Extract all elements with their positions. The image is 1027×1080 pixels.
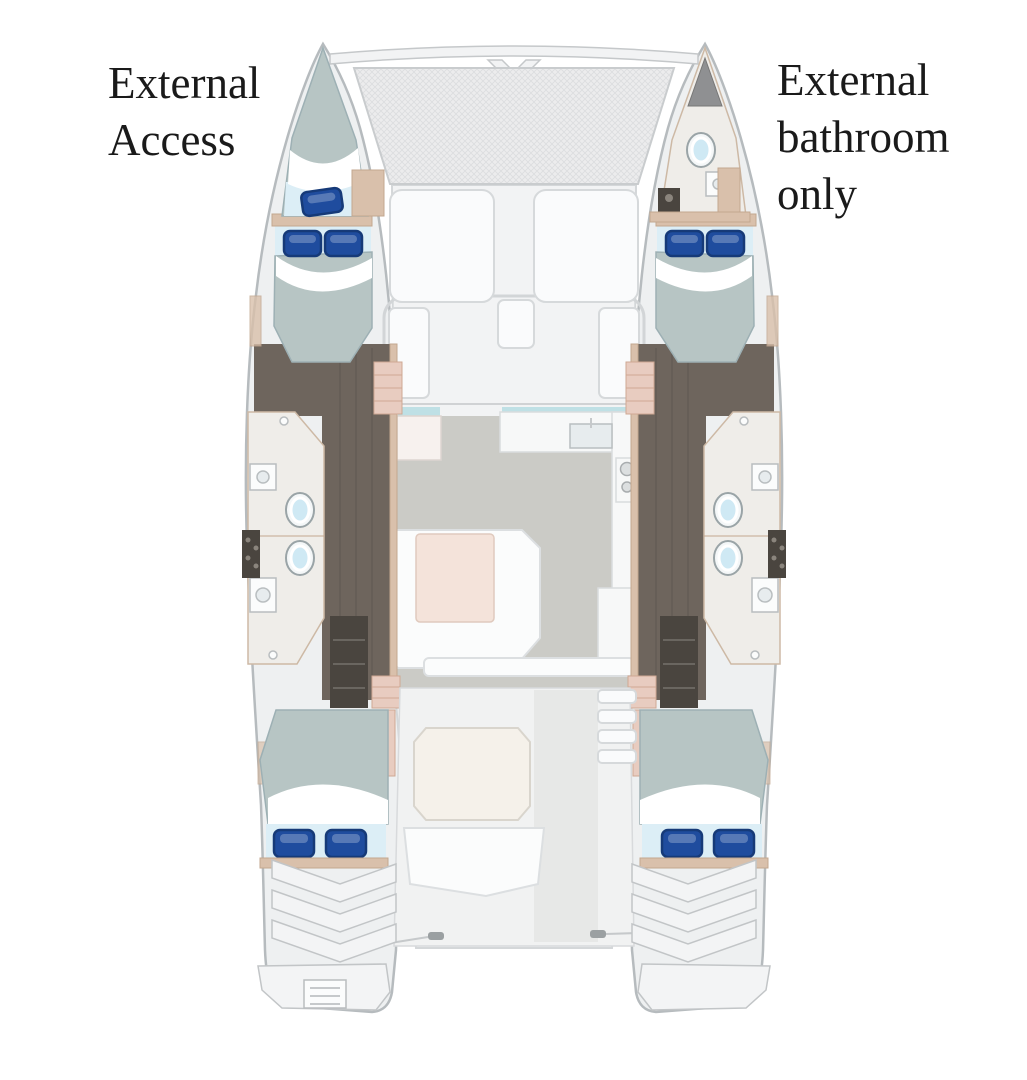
starboard-forward-cabin — [656, 214, 756, 362]
shower-drain — [751, 651, 759, 659]
foredeck-table — [498, 300, 534, 348]
starboard-aft-cabin — [640, 710, 768, 868]
cockpit — [384, 688, 638, 946]
stern-cleat — [590, 930, 606, 938]
dinette-table — [416, 534, 494, 622]
pillow-icon — [325, 231, 362, 256]
dinette — [374, 530, 540, 668]
utility-locker — [242, 530, 260, 578]
shower-drain — [269, 651, 277, 659]
nav-console — [397, 416, 441, 460]
starboard-aft-wardrobe — [660, 616, 698, 708]
shower-drain — [280, 417, 288, 425]
pillow-icon — [707, 231, 744, 256]
saloon — [374, 412, 658, 690]
cockpit-slat — [598, 710, 636, 723]
shower-drain — [740, 417, 748, 425]
starboard-forward-steps — [626, 362, 654, 414]
port-bathrooms — [242, 412, 324, 664]
cabin-divider — [650, 212, 750, 222]
windshield-glass-left — [398, 407, 440, 416]
port-forward-cabin — [272, 214, 372, 362]
port-aft-cabin — [260, 710, 388, 868]
stern-cleat — [428, 932, 444, 940]
hull-window — [250, 296, 261, 346]
cockpit-table — [414, 728, 530, 820]
saloon-aft-bench — [424, 658, 634, 676]
utility-locker — [768, 530, 786, 578]
bow-wardrobe — [352, 170, 384, 216]
ladder-icon — [304, 980, 346, 1008]
sunpad-starboard — [534, 190, 638, 302]
starboard-bathrooms — [704, 412, 786, 664]
bow-shelf — [718, 168, 740, 212]
cockpit-slat — [598, 690, 636, 703]
swim-platform — [638, 964, 770, 1010]
pillow-icon — [284, 231, 321, 256]
trampoline — [354, 68, 674, 184]
hull-window — [767, 296, 778, 346]
bow-structure — [330, 46, 698, 184]
cockpit-slat — [598, 750, 636, 763]
sunpad-port — [390, 190, 494, 302]
port-aft-wardrobe — [330, 616, 368, 708]
cockpit-bench — [404, 828, 544, 896]
pillow-icon — [666, 231, 703, 256]
floor-plan-svg — [0, 0, 1027, 1080]
yacht-floor-plan-page: External Access External bathroom only — [0, 0, 1027, 1080]
port-forward-steps — [374, 362, 402, 414]
cockpit-slat — [598, 730, 636, 743]
cockpit-walkway — [534, 690, 598, 942]
forward-crossbeam — [330, 46, 698, 64]
